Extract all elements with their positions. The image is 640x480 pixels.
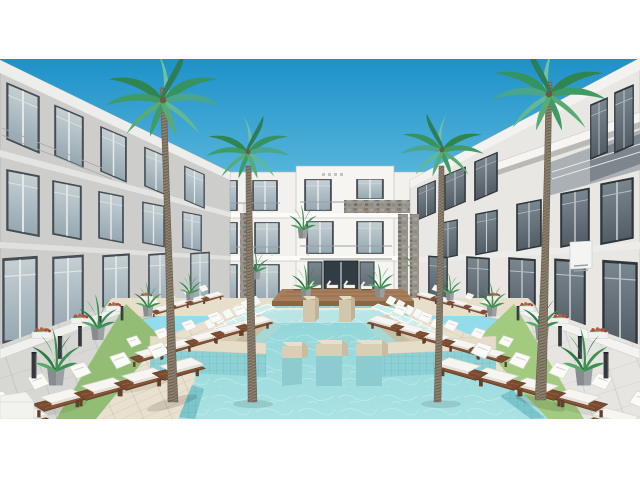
window	[99, 192, 123, 243]
cube-front	[316, 344, 342, 356]
pillar-side	[351, 296, 355, 322]
cube-underwater	[316, 356, 342, 386]
cube-front	[282, 346, 302, 358]
window	[561, 189, 589, 247]
letterbox-top	[0, 0, 640, 59]
window	[143, 202, 164, 246]
light-bollard	[578, 336, 582, 359]
window	[253, 181, 277, 211]
window	[7, 83, 38, 152]
window	[357, 179, 383, 198]
scene	[0, 42, 640, 439]
planter-box	[0, 392, 34, 419]
light-bollard	[517, 306, 520, 320]
window	[7, 170, 38, 236]
window	[53, 181, 81, 239]
light-bollard	[32, 352, 37, 378]
light-bollard	[558, 326, 562, 346]
render-canvas	[0, 0, 640, 480]
white-planter-corner	[0, 392, 34, 419]
light-bollard	[604, 352, 609, 378]
window	[3, 257, 36, 342]
window	[305, 180, 331, 211]
window	[418, 181, 435, 220]
window	[101, 127, 126, 182]
window	[476, 210, 497, 254]
pillar-side	[315, 296, 319, 322]
building-center	[205, 166, 437, 304]
window	[591, 98, 608, 159]
courtyard-rendering	[0, 0, 640, 480]
window	[357, 222, 383, 254]
light-bollard	[121, 306, 124, 320]
window	[601, 178, 632, 244]
window	[255, 223, 279, 254]
window	[183, 212, 201, 251]
window	[603, 261, 636, 344]
light-bollard	[78, 326, 82, 346]
sign-box	[570, 241, 592, 271]
cube-underwater	[282, 357, 302, 386]
letterbox-bottom	[0, 419, 640, 480]
cube-underwater	[356, 356, 382, 386]
right-stone-strip	[410, 214, 419, 302]
window	[517, 200, 541, 251]
light-bollard	[58, 336, 62, 359]
window	[615, 85, 633, 152]
cube-front	[356, 344, 382, 356]
pillar-front	[303, 300, 315, 322]
pillar-front	[339, 300, 351, 322]
